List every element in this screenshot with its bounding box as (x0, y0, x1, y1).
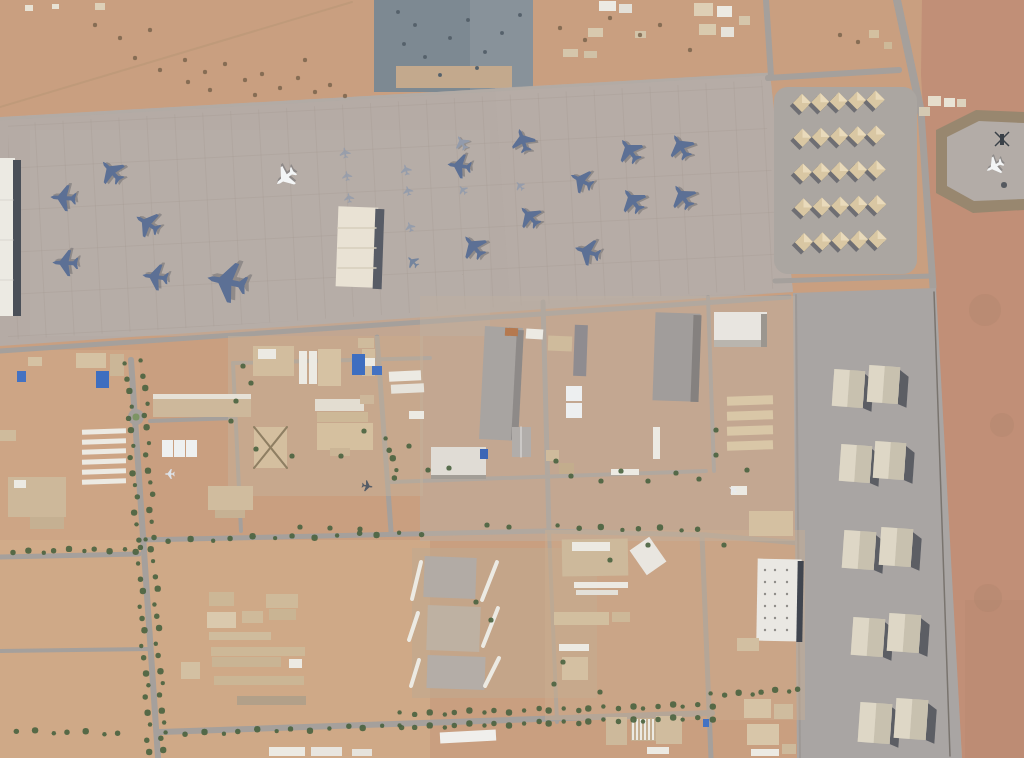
dark-pad-sand-strip (396, 66, 512, 88)
strip-building (309, 351, 317, 384)
building (739, 16, 750, 25)
building (774, 704, 793, 719)
building (919, 107, 930, 116)
building-white (25, 5, 33, 11)
building-white (751, 749, 779, 756)
barracks-row (214, 676, 304, 685)
strip-building (299, 351, 307, 384)
building (30, 517, 64, 529)
desert-patch (965, 600, 1024, 758)
building (360, 395, 374, 404)
building (611, 469, 639, 475)
building-roof-unit (258, 349, 276, 359)
building-white (269, 747, 305, 756)
roundabout-center (133, 414, 140, 421)
long-building (317, 412, 368, 422)
barracks-row (237, 696, 306, 705)
arch-hangar-edge (761, 314, 767, 347)
building-white (717, 6, 732, 17)
building (928, 96, 941, 106)
building (207, 612, 236, 628)
desert-mottle (974, 584, 1002, 612)
building-white (311, 747, 342, 756)
barracks-row (727, 395, 773, 406)
building (612, 612, 630, 622)
strip-building (559, 644, 589, 651)
gray-building (426, 605, 481, 652)
building-white (619, 4, 632, 13)
pool (96, 371, 109, 388)
building (563, 49, 578, 57)
barracks-row (212, 657, 281, 667)
barracks-row (209, 632, 271, 640)
building (208, 486, 253, 510)
building-white (52, 4, 59, 9)
building-white (289, 659, 302, 668)
pool (372, 366, 382, 375)
building (181, 662, 200, 679)
building (209, 592, 234, 606)
strip-building (574, 582, 628, 588)
building (588, 28, 603, 37)
desert-mottle (990, 413, 1014, 437)
desert-mottle (969, 294, 1001, 326)
barracks-row (727, 410, 773, 421)
compound-building (76, 353, 106, 368)
compound-building (110, 354, 124, 376)
building (562, 657, 588, 680)
canopy (566, 403, 582, 418)
building-roof-unit (14, 480, 26, 488)
long-building-edge (153, 394, 251, 399)
compound-building (28, 357, 42, 366)
edge-hangar (0, 158, 15, 316)
canopy (162, 440, 173, 457)
building (573, 325, 588, 376)
building (944, 98, 955, 107)
strip-building (409, 411, 424, 419)
building-white (721, 27, 734, 37)
building (526, 328, 544, 339)
building (694, 3, 713, 16)
building (737, 638, 759, 651)
building (266, 594, 298, 608)
canopy (186, 440, 197, 457)
building (215, 510, 245, 518)
building (548, 336, 573, 352)
building (317, 423, 373, 450)
building (653, 427, 660, 459)
gray-building (423, 556, 476, 599)
building (584, 51, 597, 58)
pool (17, 371, 26, 382)
building (242, 611, 263, 623)
building (559, 463, 574, 474)
canopy (566, 386, 582, 401)
long-building (315, 399, 364, 411)
building (699, 24, 716, 35)
pool (703, 719, 709, 727)
hangar-white-shadow (431, 475, 486, 479)
building (358, 338, 374, 348)
parking-stripe (636, 719, 638, 740)
building (744, 699, 771, 718)
canopy (174, 440, 185, 457)
building (869, 30, 879, 38)
pool (352, 354, 365, 375)
building (318, 349, 341, 386)
hangar-blue-unit (480, 449, 488, 459)
hangar-roof-detail (505, 328, 518, 337)
building (95, 3, 105, 10)
building-white (352, 749, 372, 756)
barracks-row (727, 440, 773, 451)
scene-svg (0, 0, 1024, 758)
building (747, 724, 779, 745)
building (957, 99, 966, 107)
building-white (599, 1, 616, 11)
arch-hangar-shadow (714, 340, 767, 347)
parking-stripe (652, 719, 654, 740)
strip-building (576, 590, 618, 595)
building (554, 612, 609, 625)
gray-building (426, 655, 485, 690)
building (749, 511, 793, 536)
apron-shelter (336, 206, 379, 287)
building (884, 42, 892, 49)
pad-vehicle (1001, 182, 1007, 188)
hangar-white (431, 447, 486, 478)
strip-building (391, 383, 424, 394)
compound-building (0, 430, 16, 441)
edge-hangar-shadow (13, 160, 21, 316)
building (269, 609, 296, 620)
strip-building (389, 370, 421, 382)
road (0, 649, 150, 651)
road (0, 554, 139, 557)
parking-stripe (648, 719, 650, 740)
building (782, 744, 796, 754)
building-roof-unit (572, 542, 610, 551)
barracks-row (211, 647, 305, 656)
satellite-image (0, 0, 1024, 758)
warehouse-white (756, 559, 801, 642)
barracks-row (727, 425, 773, 436)
octagon-pad (947, 121, 1024, 201)
building-white (647, 747, 669, 754)
